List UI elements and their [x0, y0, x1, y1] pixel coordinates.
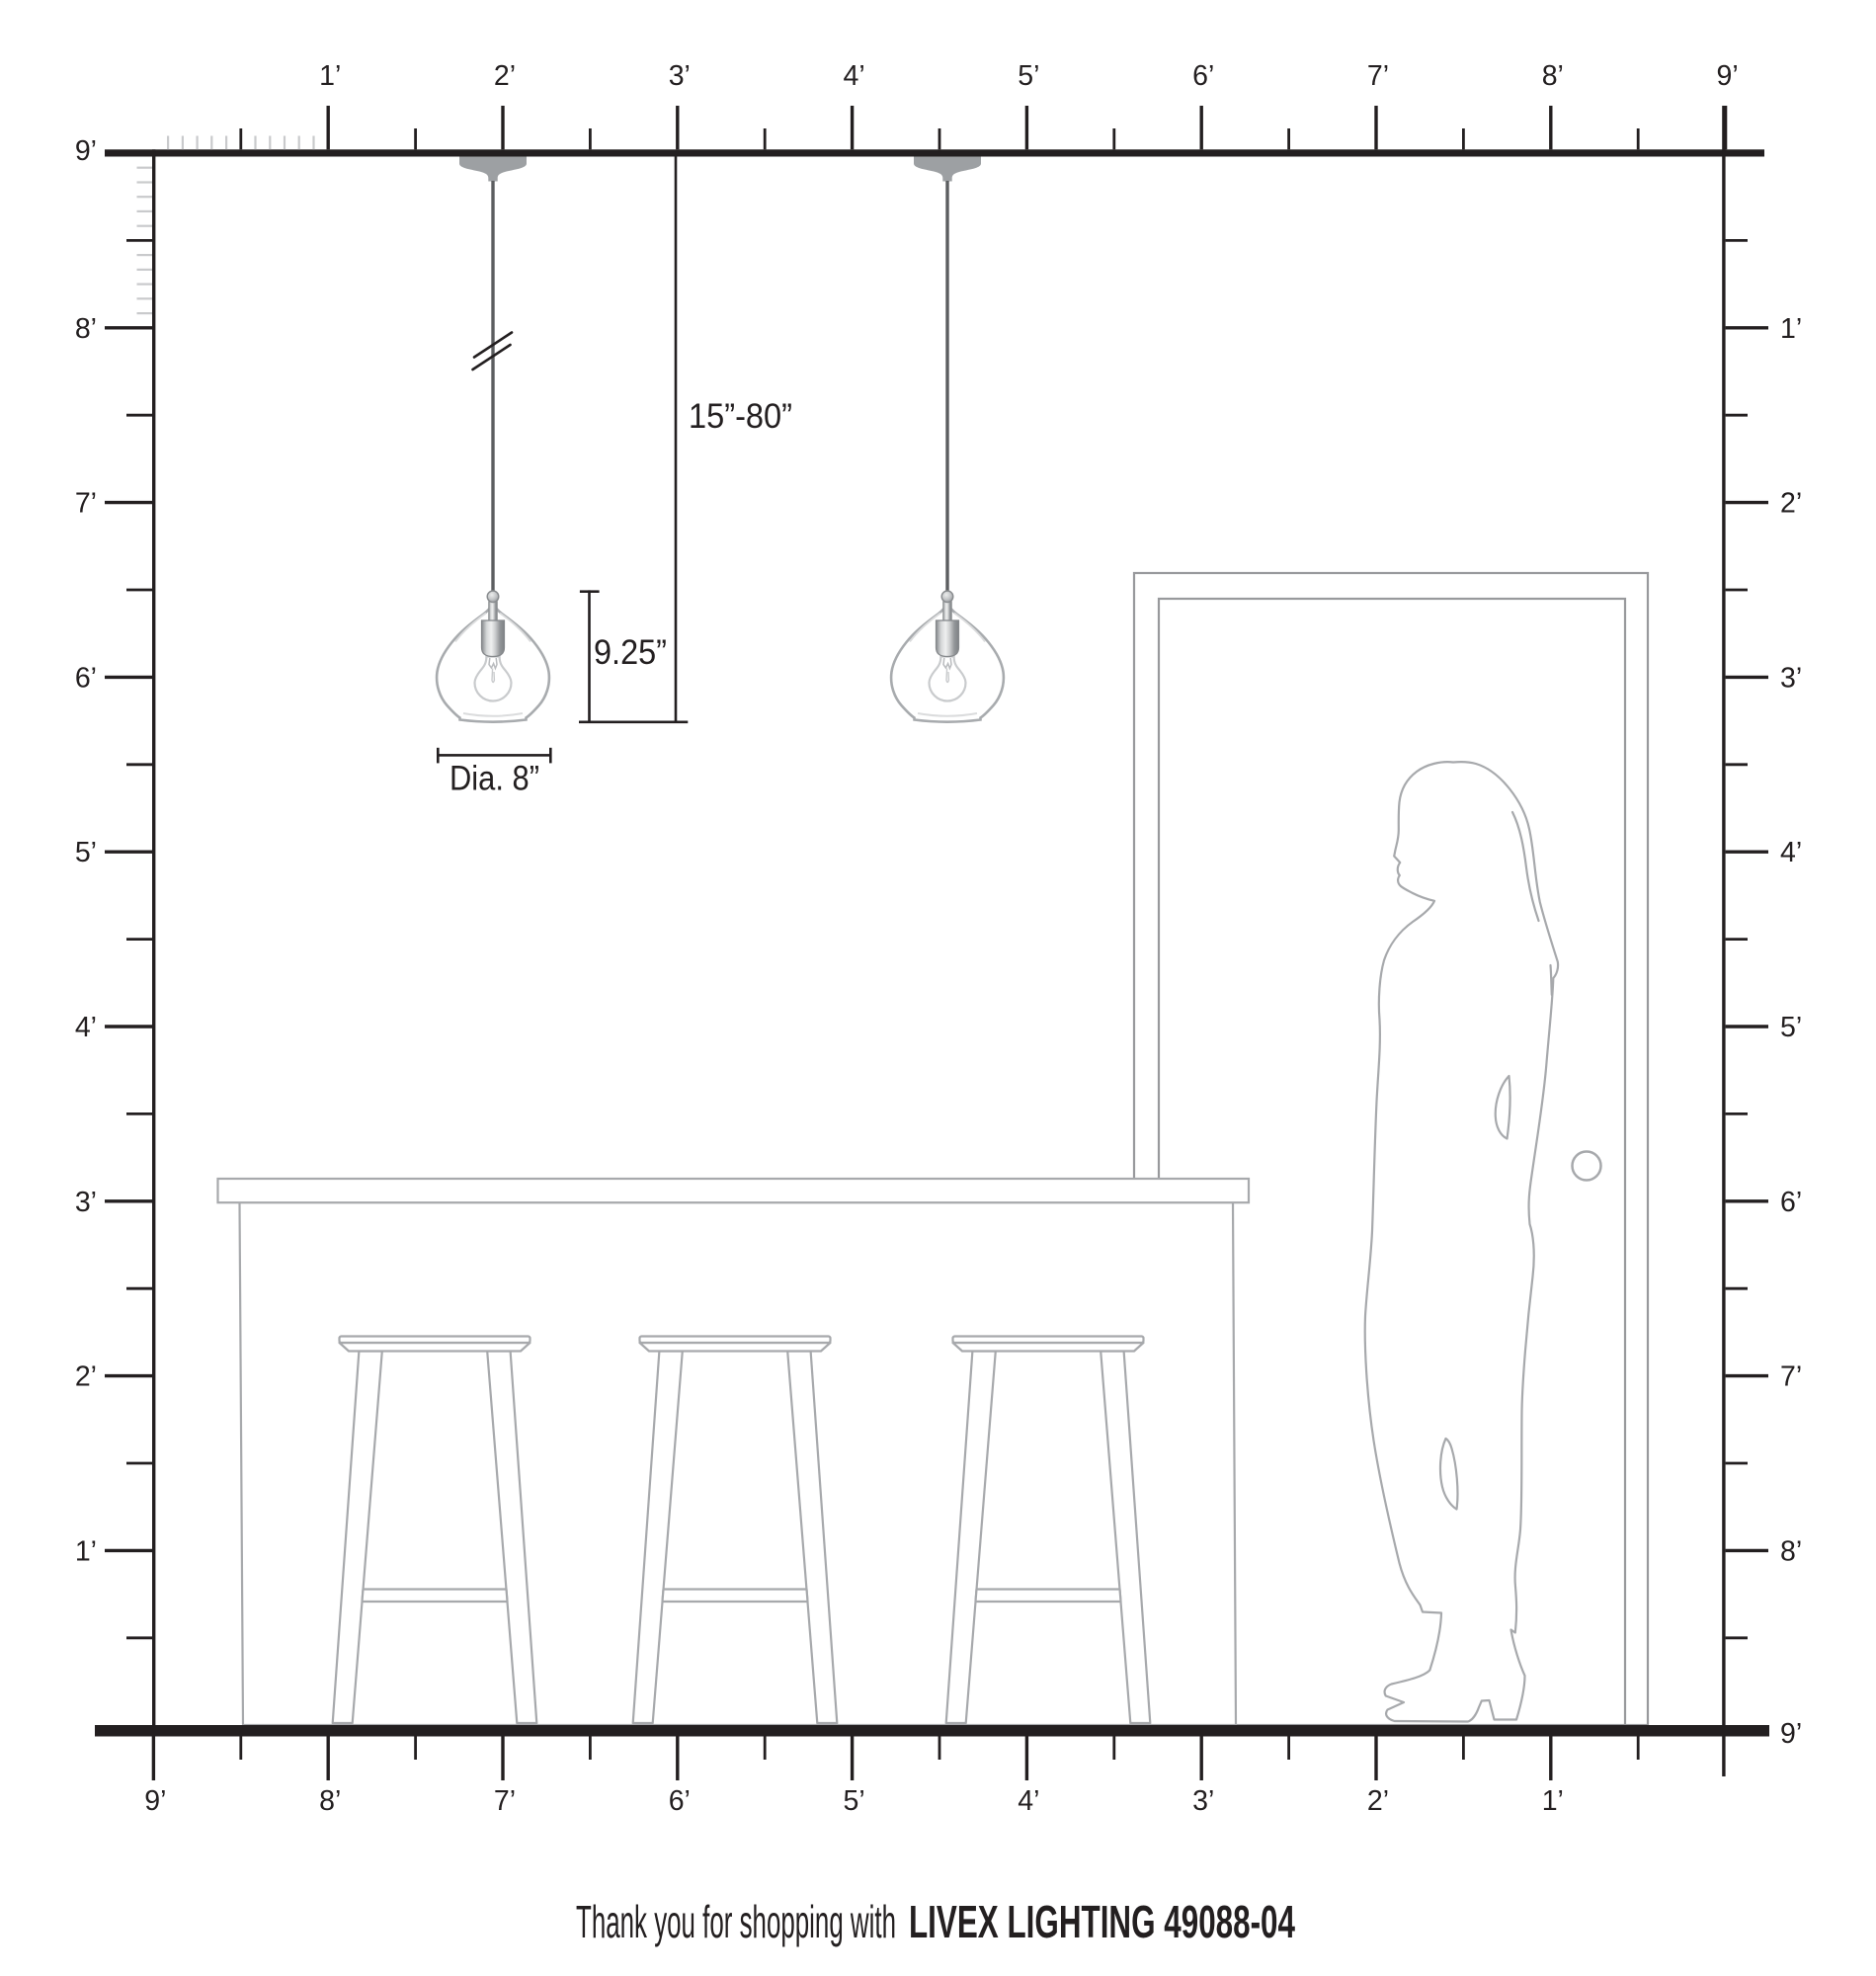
- svg-text:9’: 9’: [75, 135, 97, 167]
- svg-text:2’: 2’: [494, 60, 516, 92]
- svg-text:6’: 6’: [1192, 60, 1214, 92]
- svg-text:1’: 1’: [1542, 1785, 1564, 1817]
- svg-text:5’: 5’: [844, 1785, 865, 1817]
- svg-text:8’: 8’: [75, 313, 97, 345]
- svg-text:2’: 2’: [75, 1361, 97, 1393]
- svg-text:8’: 8’: [319, 1785, 341, 1817]
- svg-text:4’: 4’: [1018, 1785, 1039, 1817]
- svg-text:5’: 5’: [75, 837, 97, 868]
- svg-text:3’: 3’: [1780, 662, 1802, 694]
- svg-text:3’: 3’: [75, 1187, 97, 1218]
- svg-text:8’: 8’: [1542, 60, 1564, 92]
- svg-text:Dia. 8”: Dia. 8”: [449, 759, 539, 798]
- svg-text:9’: 9’: [144, 1785, 166, 1817]
- svg-text:3’: 3’: [669, 60, 691, 92]
- svg-text:3’: 3’: [1192, 1785, 1214, 1817]
- svg-text:Thank you for shopping with: Thank you for shopping with: [576, 1896, 896, 1947]
- svg-text:7’: 7’: [1367, 60, 1389, 92]
- svg-text:9’: 9’: [1780, 1718, 1802, 1750]
- svg-text:7’: 7’: [494, 1785, 516, 1817]
- svg-text:2’: 2’: [1780, 488, 1802, 520]
- svg-text:9.25”: 9.25”: [594, 632, 667, 672]
- svg-text:7’: 7’: [1780, 1361, 1802, 1393]
- svg-text:8’: 8’: [1780, 1535, 1802, 1567]
- svg-text:6’: 6’: [669, 1785, 691, 1817]
- svg-text:LIVEX LIGHTING 49088-04: LIVEX LIGHTING 49088-04: [909, 1896, 1295, 1947]
- svg-text:9’: 9’: [1717, 60, 1739, 92]
- svg-text:7’: 7’: [75, 488, 97, 520]
- svg-text:1’: 1’: [1780, 313, 1802, 345]
- svg-text:6’: 6’: [75, 662, 97, 694]
- svg-text:4’: 4’: [844, 60, 865, 92]
- svg-text:1’: 1’: [319, 60, 341, 92]
- svg-text:4’: 4’: [75, 1012, 97, 1043]
- svg-text:5’: 5’: [1018, 60, 1039, 92]
- svg-text:15”-80”: 15”-80”: [689, 396, 792, 436]
- svg-text:2’: 2’: [1367, 1785, 1389, 1817]
- svg-text:4’: 4’: [1780, 837, 1802, 868]
- svg-text:5’: 5’: [1780, 1012, 1802, 1043]
- svg-text:6’: 6’: [1780, 1187, 1802, 1218]
- svg-text:1’: 1’: [75, 1535, 97, 1567]
